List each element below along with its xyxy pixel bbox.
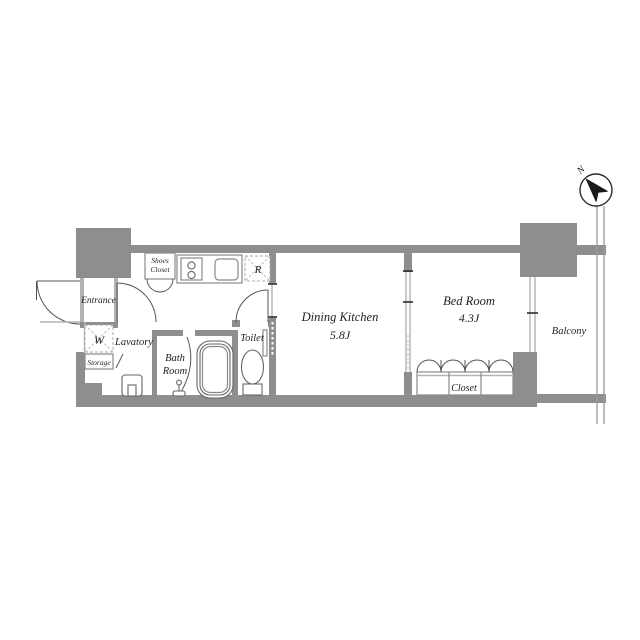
sliding-door [404, 272, 412, 334]
toilet-label: Toilet [240, 333, 265, 344]
lavatory-label: Lavatory [114, 337, 153, 348]
balcony-railing [597, 206, 604, 424]
room-dining-kitchen: Dining Kitchen 5.8J [301, 310, 379, 342]
closet: Closet [417, 360, 513, 395]
wall-segment [269, 318, 276, 395]
room-toilet: Toilet [240, 333, 265, 395]
dining-kitchen-label: Dining Kitchen [301, 310, 379, 324]
faucet-base [173, 391, 185, 396]
room-bath: Bath Room [162, 341, 233, 398]
door-swing-arc [117, 283, 156, 322]
wall-segment [577, 245, 606, 255]
shoes-closet-door-arc [147, 279, 160, 292]
dining-kitchen-area: 5.8J [330, 328, 351, 342]
wall-segment [100, 395, 513, 407]
toilet-bowl [242, 350, 264, 384]
stove-burner [188, 271, 195, 278]
washing-machine-label: W [94, 333, 105, 347]
balcony-label: Balcony [552, 326, 587, 337]
bath-door-arc [181, 337, 191, 392]
shower-head [177, 380, 182, 385]
washbasin-icon [122, 375, 142, 396]
wall-segment [520, 223, 577, 277]
stove-icon [181, 258, 202, 280]
washbasin-bowl [128, 385, 136, 396]
room-storage: Storage [85, 354, 113, 369]
floor-plan: Entrance W Storage Lavatory Shoes Closet [0, 0, 640, 640]
toilet-icon [242, 350, 264, 395]
shoes-closet-label-1: Shoes [151, 256, 169, 265]
shoes-closet-door-arc [160, 279, 173, 292]
north-compass-icon: N [574, 163, 612, 206]
wall-segment [513, 352, 537, 407]
washing-machine-space: W [85, 325, 113, 352]
bath-room-label-1: Bath [165, 353, 185, 364]
bed-room-label: Bed Room [443, 294, 495, 308]
shoes-closet: Shoes Closet [145, 253, 175, 292]
sink-icon [215, 259, 238, 280]
shoes-closet-label-2: Closet [150, 265, 170, 274]
storage-door [116, 354, 123, 368]
folding-door-arc [489, 360, 513, 372]
refrigerator-space: R [245, 256, 270, 281]
room-balcony: Balcony [552, 326, 587, 337]
wall-segment [404, 372, 412, 395]
floor-plan-drawing: Entrance W Storage Lavatory Shoes Closet [0, 0, 640, 640]
wall-segment [131, 245, 520, 253]
door-swing-arc [37, 281, 80, 324]
closet-label: Closet [451, 383, 477, 394]
entrance-label: Entrance [80, 296, 116, 306]
toilet-tank [243, 384, 262, 395]
kitchen-counter [177, 255, 242, 283]
folding-door-arc [465, 360, 489, 372]
wall-segment [76, 383, 102, 407]
storage-label: Storage [87, 358, 111, 367]
bathtub-icon [197, 341, 233, 398]
north-label: N [574, 163, 588, 177]
room-bed-room: Bed Room 4.3J [443, 294, 495, 325]
folding-door-arc [417, 360, 441, 372]
wall-segment [537, 394, 606, 403]
room-lavatory: Lavatory [114, 337, 153, 396]
stove-burner [188, 262, 195, 269]
room-entrance: Entrance [80, 296, 116, 306]
wall-segment [195, 330, 237, 336]
bed-room-area: 4.3J [459, 311, 480, 325]
closet-folding-doors [417, 360, 513, 372]
folding-door-arc [441, 360, 465, 372]
bathtub-inner [203, 347, 228, 393]
door-swing-arc [236, 290, 268, 322]
wall-segment [76, 228, 131, 278]
bath-room-label-2: Room [162, 366, 188, 377]
refrigerator-label: R [254, 264, 262, 276]
wall-segment [404, 253, 412, 272]
